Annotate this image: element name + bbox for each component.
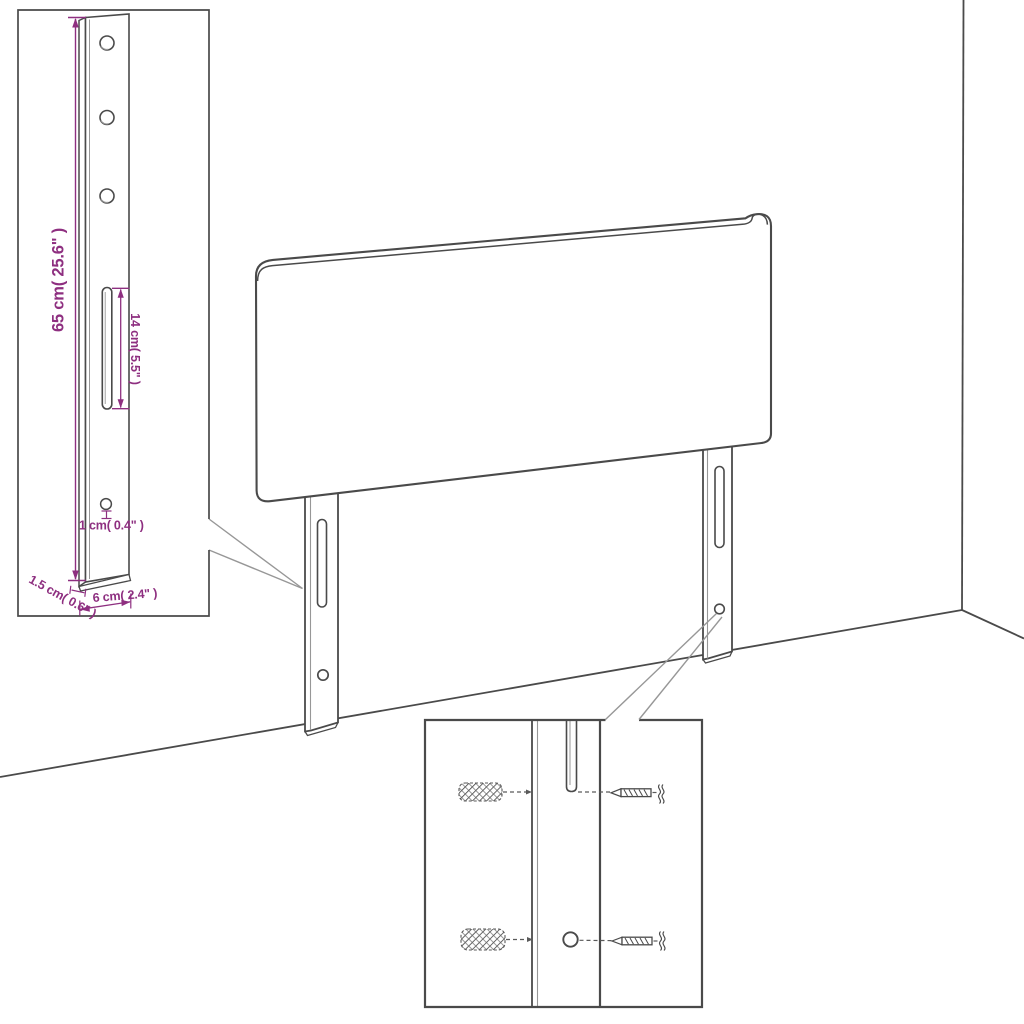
left-leg-hole (318, 670, 328, 680)
panel-outline (256, 214, 771, 501)
height-label: 65 cm( 25.6" ) (50, 228, 68, 332)
bracket-hole (100, 36, 114, 50)
callout-wedge-left (209, 519, 303, 589)
headboard-left-leg (305, 482, 338, 736)
headboard-panel (256, 214, 771, 501)
floor-line-right (962, 610, 1024, 639)
bracket-slot (102, 288, 112, 410)
headboard-right-leg (703, 437, 732, 663)
hole-label: 1 cm( 0.4" ) (79, 519, 144, 533)
detail-box-fill (425, 720, 702, 1007)
mounting-detail-box (425, 720, 702, 1007)
detail-leg-hole (563, 932, 577, 946)
left-leg-slot (318, 520, 327, 608)
bracket-small-hole (101, 499, 112, 510)
wall-anchor-icon (461, 929, 505, 950)
right-leg-slot (715, 467, 724, 548)
bracket-side-face (79, 18, 86, 587)
bracket-hole (100, 111, 114, 125)
diagram-page: 65 cm( 25.6" ) 14 cm( 5.5" ) 1 cm( 0.4" … (0, 0, 1024, 1024)
right-leg-hole (715, 604, 725, 614)
wall-anchor-icon (459, 783, 502, 801)
bracket-hole (100, 189, 114, 203)
bracket-enlarged (79, 14, 131, 591)
slot-label: 14 cm( 5.5" ) (128, 313, 142, 384)
wall-corner-line (962, 0, 964, 610)
assembly-diagram: 65 cm( 25.6" ) 14 cm( 5.5" ) 1 cm( 0.4" … (0, 0, 1024, 1024)
